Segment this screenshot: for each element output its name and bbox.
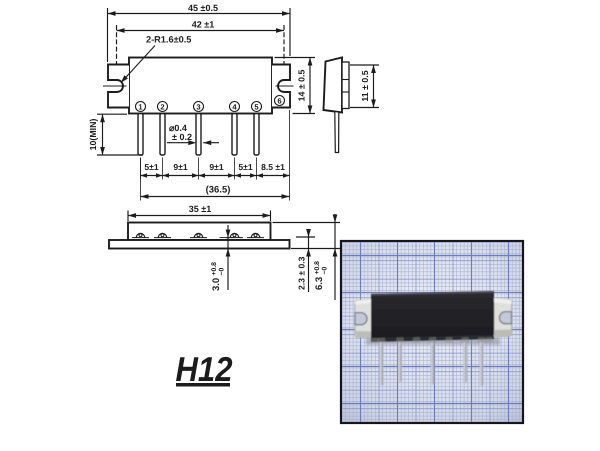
svg-text:8.5 ±1: 8.5 ±1 xyxy=(261,162,285,172)
svg-text:2.3 ± 0.3: 2.3 ± 0.3 xyxy=(297,256,307,290)
svg-text:9±1: 9±1 xyxy=(209,162,223,172)
svg-text:2: 2 xyxy=(160,102,164,111)
svg-text:10(MIN): 10(MIN) xyxy=(88,119,98,151)
svg-text:45 ±0.5: 45 ±0.5 xyxy=(188,3,218,13)
svg-text:+0.8: +0.8 xyxy=(314,261,321,275)
svg-text:5±1: 5±1 xyxy=(238,162,252,172)
svg-text:−0: −0 xyxy=(322,267,329,275)
svg-text:3: 3 xyxy=(196,102,200,111)
svg-text:5±1: 5±1 xyxy=(144,162,158,172)
svg-text:(36.5): (36.5) xyxy=(206,185,231,196)
svg-text:2-R1.6±0.5: 2-R1.6±0.5 xyxy=(146,35,191,45)
svg-text:−0: −0 xyxy=(219,268,226,276)
svg-text:3.0: 3.0 xyxy=(211,278,222,291)
svg-text:+0.8: +0.8 xyxy=(211,262,218,276)
svg-text:42 ±1: 42 ±1 xyxy=(192,20,214,30)
svg-text:14 ± 0.5: 14 ± 0.5 xyxy=(297,70,307,102)
svg-text:35 ±1: 35 ±1 xyxy=(189,204,211,214)
svg-text:6.3: 6.3 xyxy=(314,277,325,290)
svg-text:6: 6 xyxy=(277,96,281,105)
svg-text:9±1: 9±1 xyxy=(173,162,187,172)
svg-text:11 ± 0.5: 11 ± 0.5 xyxy=(360,70,370,101)
